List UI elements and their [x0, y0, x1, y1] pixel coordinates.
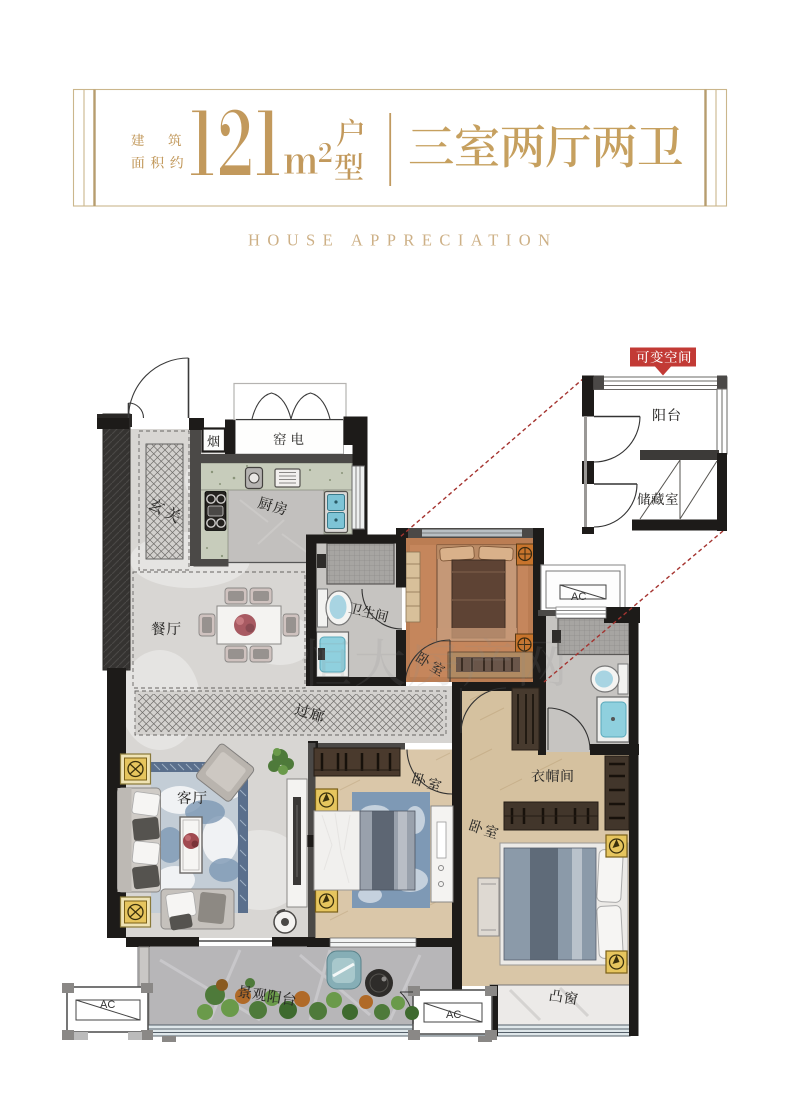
svg-text:AC: AC [100, 999, 115, 1011]
svg-text:HOUSE APPRECIATION: HOUSE APPRECIATION [248, 231, 550, 250]
svg-text:AC: AC [571, 591, 586, 603]
svg-text:AC: AC [446, 1009, 461, 1021]
